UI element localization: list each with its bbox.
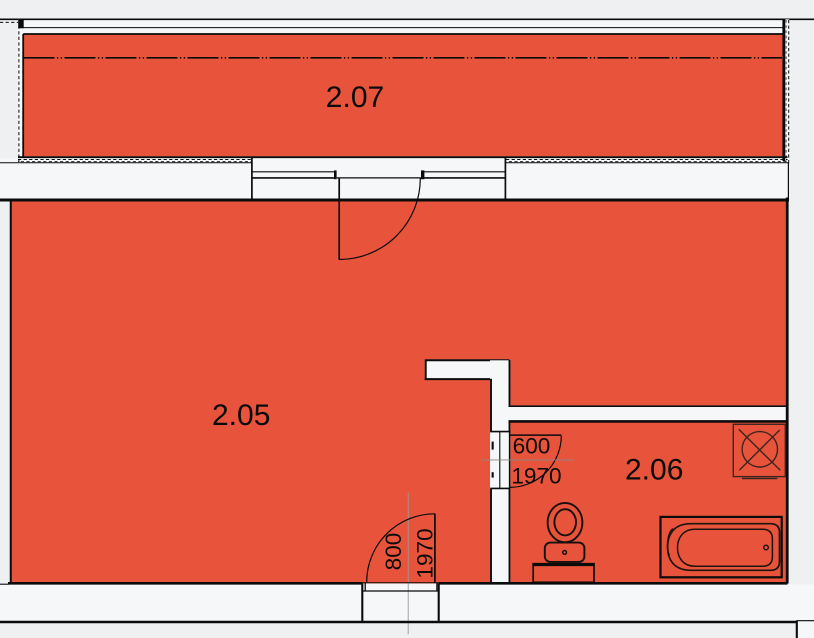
svg-text:2.07: 2.07 <box>326 81 384 114</box>
svg-text:800: 800 <box>381 533 406 571</box>
svg-text:2.05: 2.05 <box>212 399 270 432</box>
svg-text:2.06: 2.06 <box>625 453 683 486</box>
svg-text:1970: 1970 <box>511 463 561 488</box>
svg-text:600: 600 <box>513 434 551 459</box>
svg-text:1970: 1970 <box>412 528 437 578</box>
